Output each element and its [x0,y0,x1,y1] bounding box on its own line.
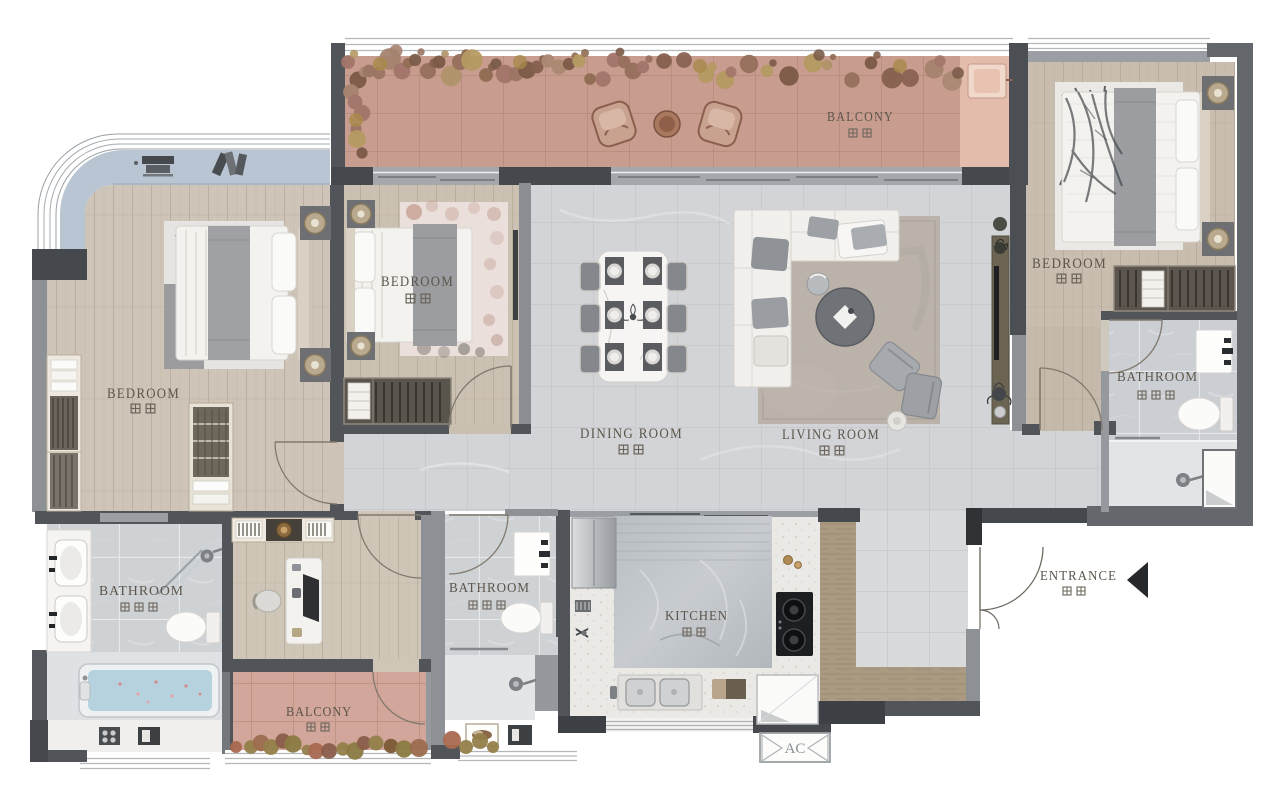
svg-text:BALCONY: BALCONY [827,110,894,125]
svg-text:BATHROOM: BATHROOM [1117,369,1198,384]
svg-text:LIVING ROOM: LIVING ROOM [782,427,880,443]
svg-text:ENTRANCE: ENTRANCE [1040,569,1117,584]
svg-text:DINING ROOM: DINING ROOM [580,426,683,442]
svg-text:BEDROOM: BEDROOM [107,386,180,402]
svg-text:AC: AC [785,741,806,757]
svg-text:KITCHEN: KITCHEN [665,609,728,624]
svg-text:BALCONY: BALCONY [286,704,352,719]
svg-text:BATHROOM: BATHROOM [99,584,184,599]
svg-text:BEDROOM: BEDROOM [381,274,454,290]
svg-text:BEDROOM: BEDROOM [1032,256,1107,272]
svg-text:BATHROOM: BATHROOM [449,580,530,595]
